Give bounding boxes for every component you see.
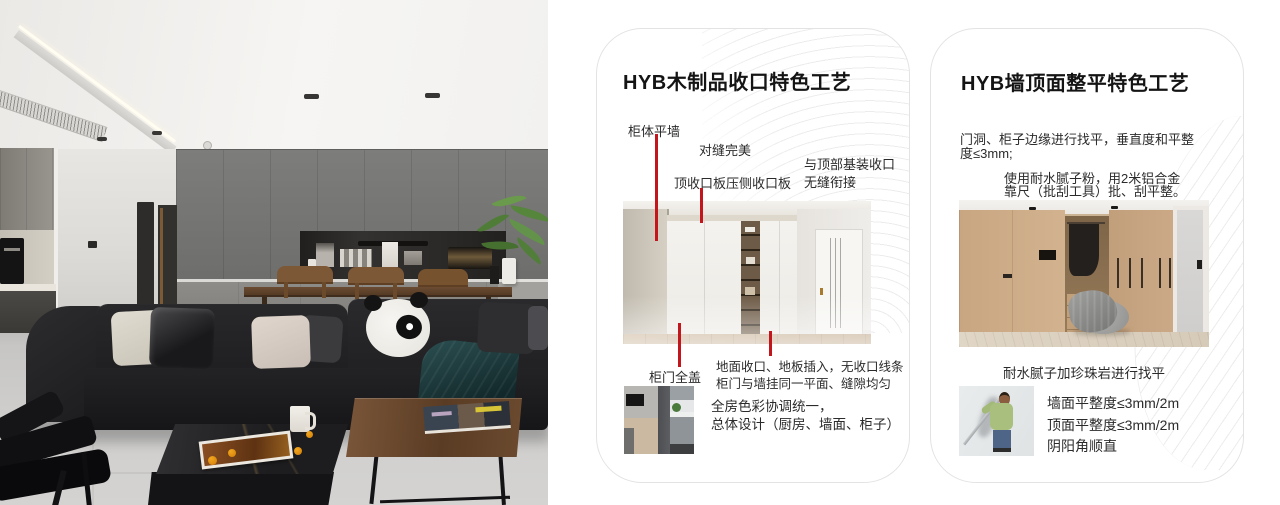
worker-shirt — [990, 403, 1013, 430]
panda-eye-patch — [393, 312, 424, 342]
kumquat — [306, 431, 313, 438]
plant-leaf — [505, 219, 548, 246]
callout-label-perfect-seam: 对缝完美 — [699, 140, 751, 159]
thumb-sofa — [624, 428, 634, 454]
pantry-coffee-machine — [0, 238, 24, 284]
white-mug — [290, 406, 310, 432]
whole-room-thumbnail — [624, 386, 694, 454]
pillow-grey — [528, 306, 548, 350]
card-title: HYB墙顶面整平特色工艺 — [961, 67, 1189, 96]
worker-thumbnail — [959, 386, 1034, 456]
panda-plush — [366, 299, 430, 357]
kumquat — [208, 456, 217, 465]
worker-shoes — [993, 448, 1011, 452]
glass-door-handle — [1197, 260, 1202, 269]
thumb-upper-cabinet — [670, 386, 694, 400]
espresso-machine — [316, 243, 334, 267]
callout-line — [678, 323, 681, 367]
callout-label-ceiling-joint-2: 无缝衔接 — [804, 172, 856, 191]
floor-note-line2: 柜门与墙挂同一平面、缝隙均匀 — [716, 373, 891, 392]
panda-ear — [410, 292, 428, 308]
ceiling-spotlight — [304, 94, 319, 99]
living-room-photo — [0, 0, 548, 505]
photo-caption: 耐水腻子加珍珠岩进行找平 — [959, 362, 1209, 382]
thumb-appliance — [670, 444, 694, 454]
callout-label-ceiling-joint-1: 与顶部基装收口 — [804, 154, 895, 173]
potted-plant — [462, 196, 548, 292]
promo-graphic: { "colors": { "accent_red": "#c3161c", "… — [0, 0, 1280, 505]
glass-door — [1177, 210, 1203, 332]
plant-leaf — [509, 205, 548, 221]
kumquat — [294, 447, 302, 455]
plant-leaf — [477, 208, 509, 238]
coffee-maker — [382, 242, 398, 267]
chrome-kettle — [404, 251, 422, 265]
putty-note-line2: 靠尺（批刮工具）批、刮平整。 — [1004, 181, 1186, 200]
shelf-item — [745, 287, 755, 295]
chair-post — [393, 283, 397, 299]
ceiling-spotlight — [97, 137, 107, 141]
wood-wall — [959, 210, 1065, 336]
door-handle — [1003, 274, 1012, 278]
chair-post — [355, 283, 359, 299]
chair-post — [284, 282, 288, 298]
dining-chair — [418, 269, 468, 287]
ceiling-spotlight — [425, 93, 440, 98]
leveling-note-line2: 度≤3mm; — [960, 143, 1013, 162]
pillow-black-leather — [149, 307, 215, 369]
plant-leaf — [481, 237, 518, 254]
thumb-grey-column — [658, 386, 670, 454]
worker-jeans — [993, 430, 1011, 450]
callout-label-cabinet-flush-wall: 柜体平墙 — [628, 121, 680, 140]
callout-label-top-panel: 顶收口板压侧收口板 — [674, 173, 791, 192]
light-switch — [88, 241, 97, 248]
cup-rack — [340, 249, 372, 267]
callout-line — [700, 188, 703, 223]
handle-slit — [1117, 258, 1119, 288]
ceiling-spotlight — [1111, 206, 1118, 209]
brass-handle — [820, 288, 823, 295]
handle-slit — [1141, 258, 1143, 288]
pantry-upper-cabinets — [0, 148, 54, 232]
summary-line2: 总体设计（厨房、墙面、柜子） — [711, 413, 900, 433]
handle-slit — [1159, 258, 1161, 288]
smart-lock — [1039, 250, 1056, 260]
thumb-plant — [672, 403, 681, 412]
thumb-tv — [626, 394, 644, 406]
callout-line — [769, 331, 772, 356]
panda-ear — [364, 295, 382, 311]
shelf-item — [746, 257, 755, 264]
wardrobe-render-image — [623, 201, 871, 344]
pantry-counter — [0, 284, 56, 291]
kumquat — [228, 449, 236, 457]
shelf-item — [745, 227, 755, 232]
chair-post — [322, 282, 326, 298]
light-reflection — [623, 296, 871, 344]
ceiling-spotlight — [152, 131, 162, 135]
callout-line — [655, 134, 658, 241]
card-title: HYB木制品收口特色工艺 — [623, 66, 851, 95]
metric-corner-straightness: 阴阳角顺直 — [1047, 436, 1117, 456]
pillow-pink — [251, 315, 311, 369]
metric-ceiling-flatness: 顶面平整度≤3mm/2m — [1047, 415, 1179, 435]
black-vase — [490, 266, 499, 284]
magazine-art — [432, 411, 452, 416]
metric-wall-flatness: 墙面平整度≤3mm/2m — [1047, 393, 1179, 413]
card-wall-leveling: HYB墙顶面整平特色工艺 门洞、柜子边缘进行找平，垂直度和平整 度≤3mm; 使… — [930, 28, 1244, 483]
thumb-lower-cabinet — [670, 417, 694, 444]
callout-label-full-cover-door: 柜门全盖 — [649, 367, 701, 386]
handle-slit — [1129, 258, 1131, 288]
white-vase — [502, 258, 516, 284]
magazine-title-strip — [475, 406, 501, 413]
hanging-clothes — [1069, 224, 1099, 276]
summary-line1: 全房色彩协调统一， — [711, 395, 833, 415]
closet-photo — [959, 200, 1209, 347]
handle-slit — [1169, 258, 1171, 288]
stone-table-front — [148, 472, 334, 505]
panda-eye — [405, 322, 414, 331]
card-wood-finishing: HYB木制品收口特色工艺 柜体平墙 对缝完美 顶收口板压侧收口板 与顶部基装收口… — [596, 28, 910, 483]
